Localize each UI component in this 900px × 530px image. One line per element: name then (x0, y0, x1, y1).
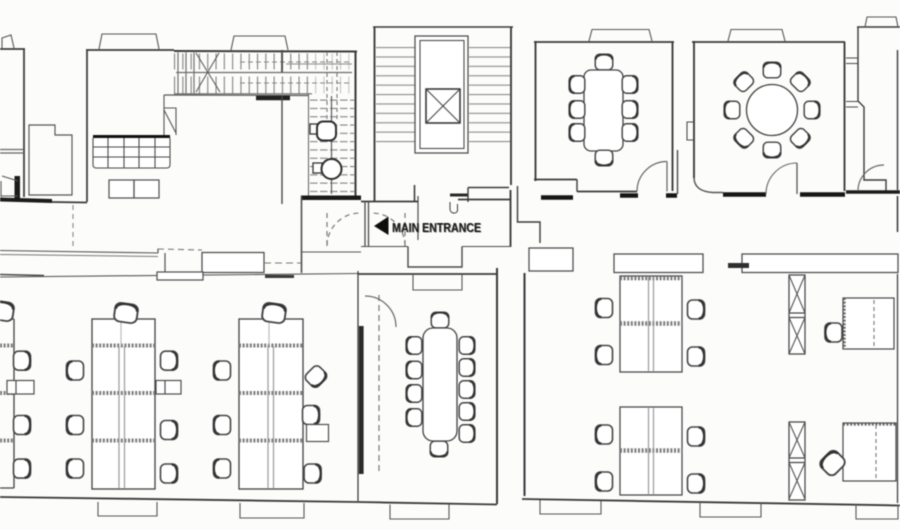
svg-text:MAIN ENTRANCE: MAIN ENTRANCE (393, 221, 482, 236)
